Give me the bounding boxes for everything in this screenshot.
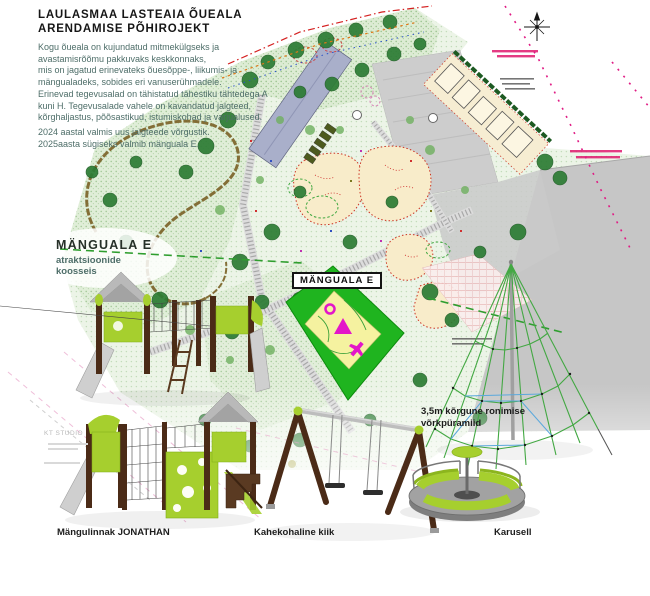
playhouse-label: Mängulinnak JONATHAN — [57, 527, 170, 538]
zone-e-map-label: MÄNGUALA E — [292, 272, 382, 289]
compass-north-icon — [524, 13, 550, 41]
pyramid-label: 3,5m kõrgune ronimise võrkpüramiid — [421, 406, 525, 430]
intro-paragraph-1: Kogu õueala on kujundatud mitmekülgseks … — [38, 42, 237, 88]
watermark-line — [48, 443, 88, 445]
carousel-label: Karusell — [494, 527, 532, 538]
watermark-line — [48, 448, 78, 450]
page-title-line2: ARENDAMISE PÕHIROJEKT — [38, 23, 210, 35]
watermark-line — [44, 462, 80, 464]
swing-label: Kahekohaline kiik — [254, 527, 334, 538]
intro-paragraph-2: Erinevad tegevusalad on tähistatud tähes… — [38, 89, 268, 124]
project-sheet: LAULASMAA LASTEAIA ÕUEALA ARENDAMISE PÕH… — [0, 0, 650, 596]
intro-paragraph-3: 2024 aastal valmis uus jalgteede võrgust… — [38, 127, 210, 150]
zone-e-subheading: atraktsioonide koosseis — [56, 255, 121, 277]
studio-watermark: KT STUDIO — [44, 430, 83, 437]
zone-e-heading: MÄNGUALA E — [56, 238, 152, 252]
bottom-white — [0, 495, 650, 596]
page-title-line1: LAULASMAA LASTEAIA ÕUEALA — [38, 9, 242, 21]
